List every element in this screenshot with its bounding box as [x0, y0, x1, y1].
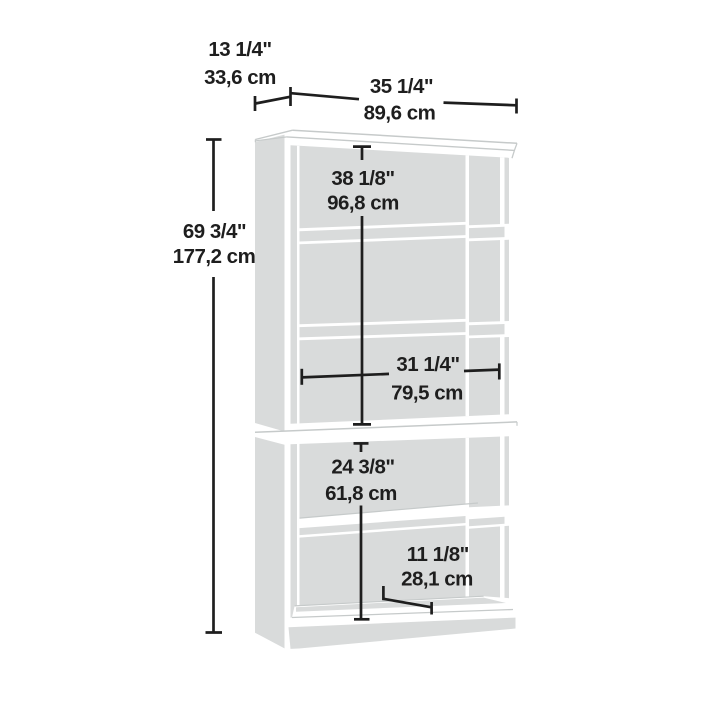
svg-text:177,2 cm: 177,2 cm [173, 245, 256, 268]
svg-text:96,8 cm: 96,8 cm [327, 192, 399, 215]
svg-text:13 1/4": 13 1/4" [208, 38, 271, 61]
svg-text:79,5 cm: 79,5 cm [391, 382, 463, 405]
svg-text:89,6 cm: 89,6 cm [364, 102, 436, 125]
svg-text:31 1/4": 31 1/4" [396, 353, 459, 376]
svg-text:69 3/4": 69 3/4" [183, 220, 246, 243]
svg-text:24 3/8": 24 3/8" [331, 456, 394, 479]
svg-text:33,6 cm: 33,6 cm [204, 66, 276, 89]
svg-text:11 1/8": 11 1/8" [407, 543, 469, 566]
svg-text:28,1 cm: 28,1 cm [401, 568, 473, 591]
svg-text:38 1/8": 38 1/8" [331, 167, 394, 190]
svg-text:61,8 cm: 61,8 cm [325, 482, 397, 505]
svg-text:35 1/4": 35 1/4" [370, 75, 433, 98]
